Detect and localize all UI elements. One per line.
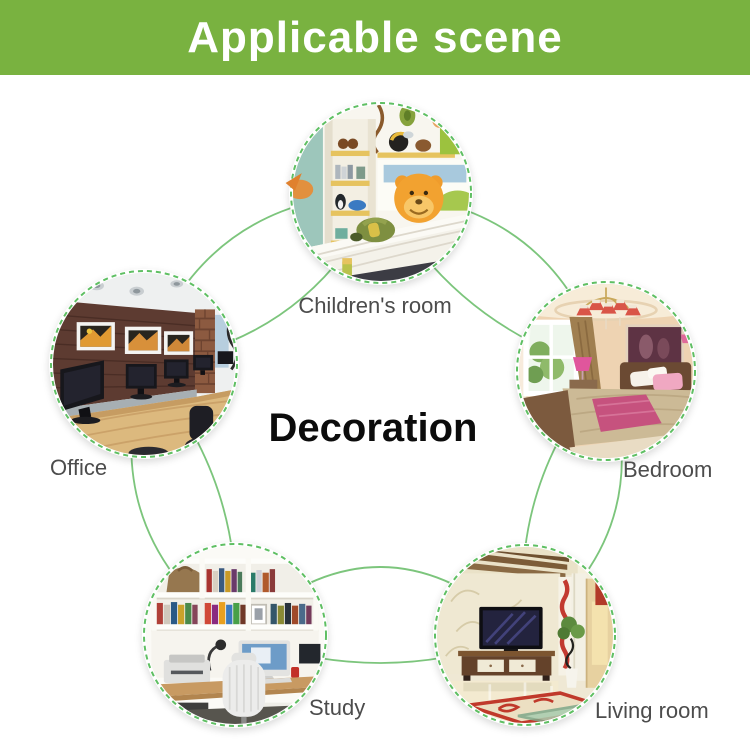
bedroom-photo xyxy=(519,284,693,458)
bedroom-label: Bedroom xyxy=(623,457,712,483)
children-room-label: Children's room xyxy=(298,293,451,319)
living-room-photo xyxy=(437,547,613,723)
office-label: Office xyxy=(50,455,107,481)
study-circle xyxy=(142,542,328,728)
study-label: Study xyxy=(309,695,365,721)
page: Applicable scene xyxy=(0,0,750,750)
banner-title: Applicable scene xyxy=(187,13,562,63)
office-circle xyxy=(49,269,239,459)
living-room-label: Living room xyxy=(595,698,709,724)
banner: Applicable scene xyxy=(0,0,750,75)
children-room-circle xyxy=(289,101,473,285)
living-room-circle xyxy=(433,543,617,727)
children-room-photo xyxy=(293,105,469,281)
study-photo xyxy=(146,546,324,724)
bedroom-circle xyxy=(515,280,697,462)
center-title: Decoration xyxy=(269,406,478,451)
office-photo xyxy=(53,273,235,455)
